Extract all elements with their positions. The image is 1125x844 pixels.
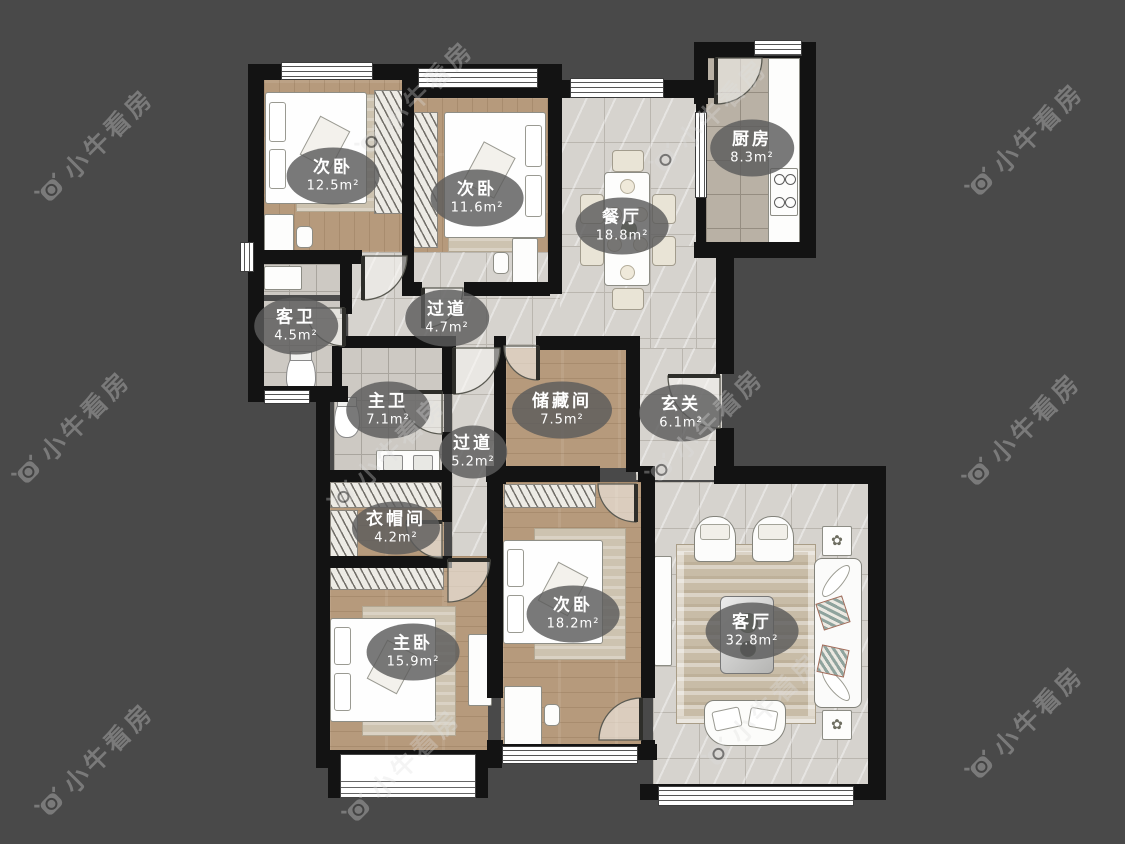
room-label-bedroom-a: 次卧12.5m² (287, 148, 380, 205)
room-label-master-bath: 主卫7.1m² (346, 382, 430, 439)
room-label-master-bedroom: 主卧15.9m² (367, 624, 460, 681)
door-swing (599, 698, 641, 740)
room-label-foyer: 玄关6.1m² (639, 385, 723, 442)
room-label-living: 客厅32.8m² (706, 603, 799, 660)
room-label-hallway-a: 过道4.7m² (405, 290, 489, 347)
room-label-storage: 储藏间7.5m² (512, 382, 612, 439)
door-swing (598, 484, 636, 522)
room-label-bedroom-b: 次卧11.6m² (431, 170, 524, 227)
room-label-dining: 餐厅18.8m² (576, 198, 669, 255)
room-label-cloakroom: 衣帽间4.2m² (352, 502, 440, 555)
room-label-hallway-b: 过道5.2m² (439, 426, 507, 479)
room-label-bedroom-c: 次卧18.2m² (527, 586, 620, 643)
door-swing (363, 256, 407, 300)
room-label-guest-bath: 客卫4.5m² (254, 298, 338, 355)
room-label-kitchen: 厨房8.3m² (710, 120, 794, 177)
door-swing (504, 346, 538, 380)
door-swing (716, 58, 762, 104)
floorplan: ✿ ✿ 次卧12.5m² 次卧11.6m² 餐厅18.8m² 厨房8.3m² 客… (0, 0, 1125, 844)
floorplan-canvas: ✿ ✿ 次卧12.5m² 次卧11.6m² 餐厅18.8m² 厨房8.3m² 客… (0, 0, 1125, 844)
door-swing (454, 348, 500, 394)
door-swing (448, 560, 490, 602)
